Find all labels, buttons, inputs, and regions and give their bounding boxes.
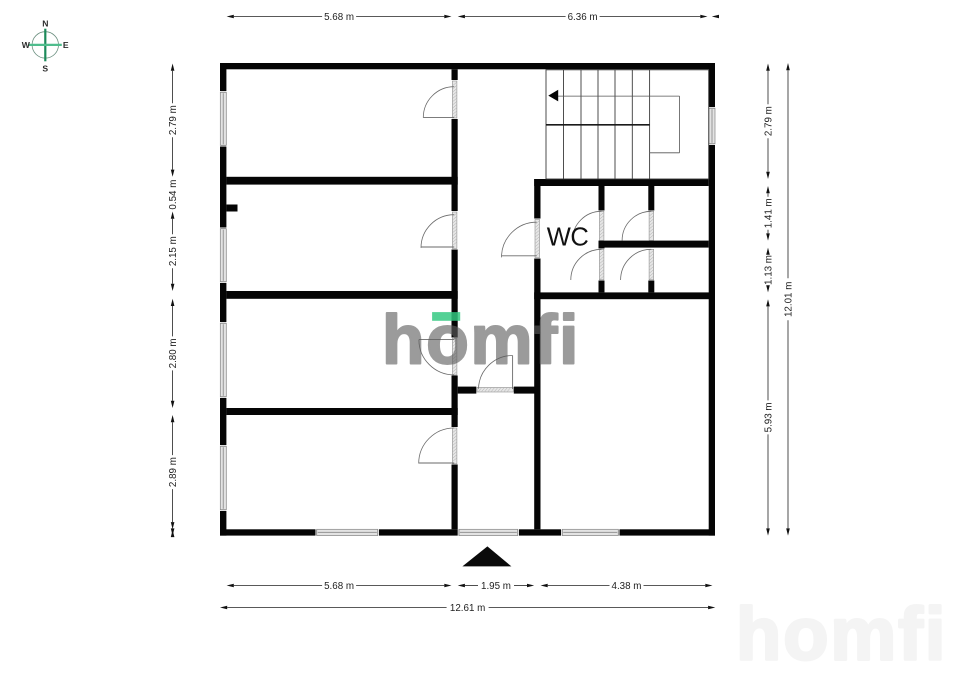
svg-text:0.54 m: 0.54 m	[168, 180, 179, 210]
svg-text:2.15 m: 2.15 m	[168, 236, 179, 266]
svg-text:2.79 m: 2.79 m	[168, 105, 179, 135]
svg-text:2.80 m: 2.80 m	[168, 338, 179, 368]
svg-text:homfi: homfi	[382, 301, 580, 379]
svg-text:5.68 m: 5.68 m	[324, 581, 354, 592]
svg-text:12.61 m: 12.61 m	[450, 603, 485, 614]
svg-text:S: S	[42, 64, 48, 74]
svg-text:N: N	[42, 18, 48, 28]
svg-text:2.89 m: 2.89 m	[168, 457, 179, 487]
svg-text:E: E	[63, 40, 69, 50]
svg-text:5.68 m: 5.68 m	[324, 12, 354, 23]
svg-text:1.95 m: 1.95 m	[481, 581, 511, 592]
svg-text:homfi: homfi	[736, 593, 947, 676]
svg-text:6.36 m: 6.36 m	[568, 12, 598, 23]
svg-text:WC: WC	[547, 224, 589, 252]
svg-text:1.41 m: 1.41 m	[763, 198, 774, 228]
svg-text:1.13 m: 1.13 m	[763, 255, 774, 285]
svg-text:4.38 m: 4.38 m	[612, 581, 642, 592]
svg-text:12.01 m: 12.01 m	[783, 282, 794, 317]
svg-text:2.79 m: 2.79 m	[763, 106, 774, 136]
svg-text:5.93 m: 5.93 m	[763, 402, 774, 432]
svg-text:W: W	[22, 40, 31, 50]
